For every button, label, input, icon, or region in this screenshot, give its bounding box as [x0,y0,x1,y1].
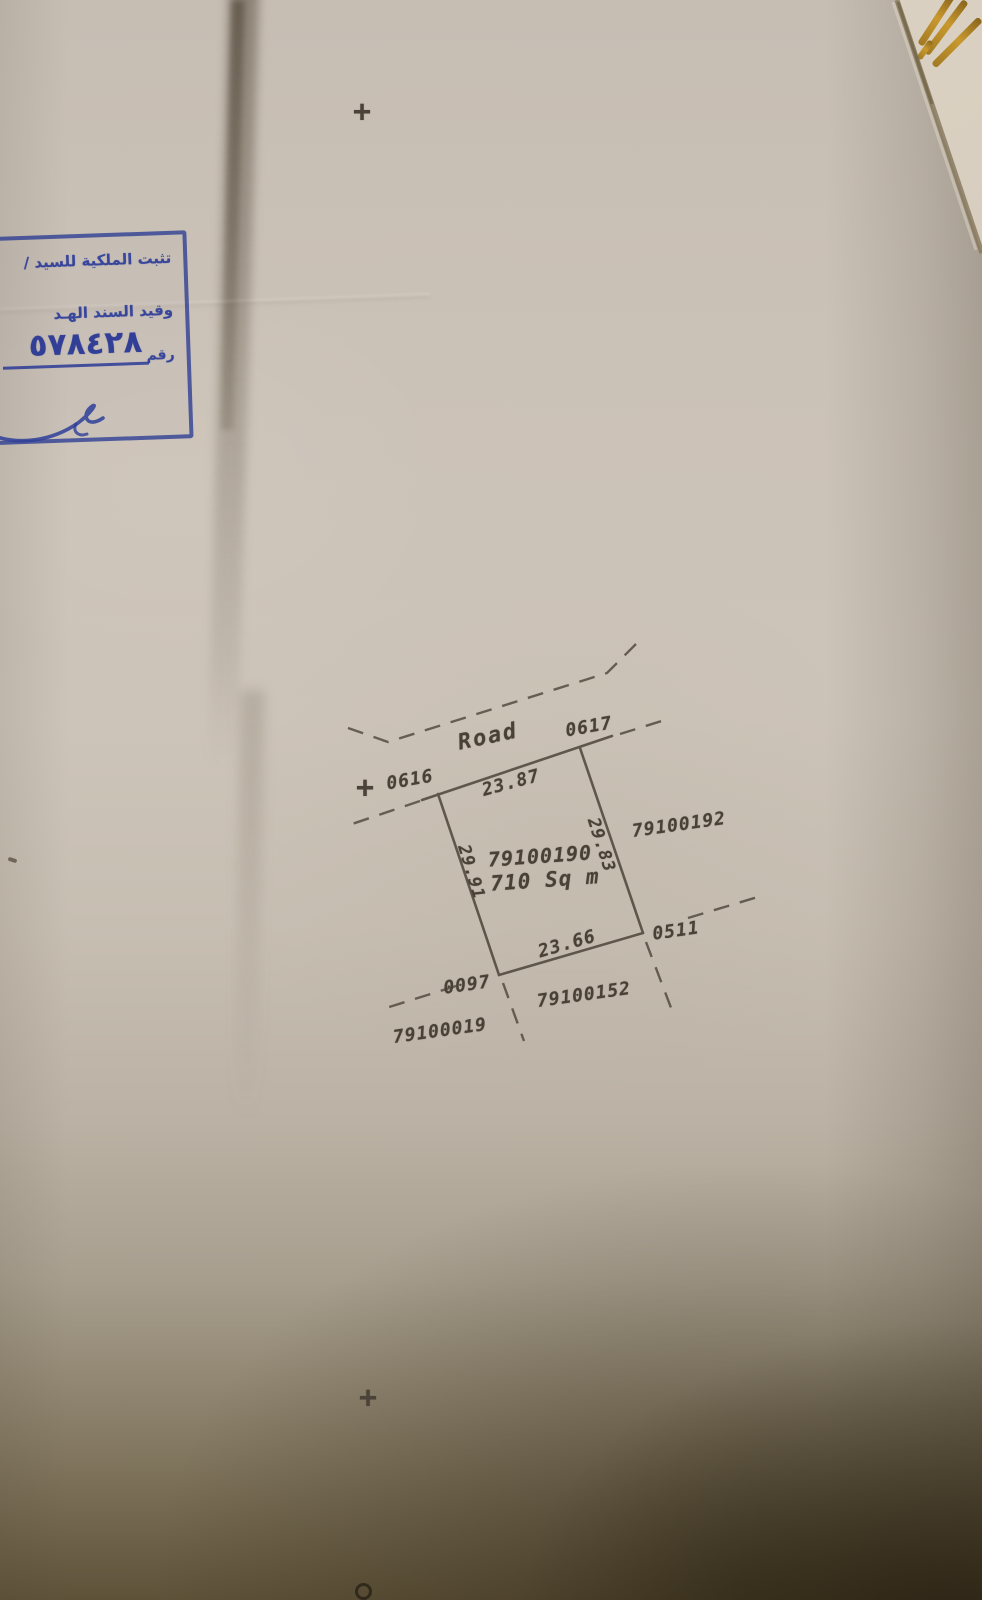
road-edge-extension-right [620,719,668,734]
plot-diagram-lines [0,0,982,1600]
survey-cross-mark: + [356,771,374,806]
right-boundary-extension-down [646,942,673,1013]
hole-mark [355,1583,372,1600]
survey-cross-mark: + [353,95,371,130]
scanned-survey-photo: تثبت الملكية للسيد / وقيد السند الهـد رق… [0,0,982,1600]
bottom-boundary-extension-right [688,896,761,918]
survey-cross-mark: + [359,1381,377,1416]
left-boundary-extension-down [503,983,524,1041]
